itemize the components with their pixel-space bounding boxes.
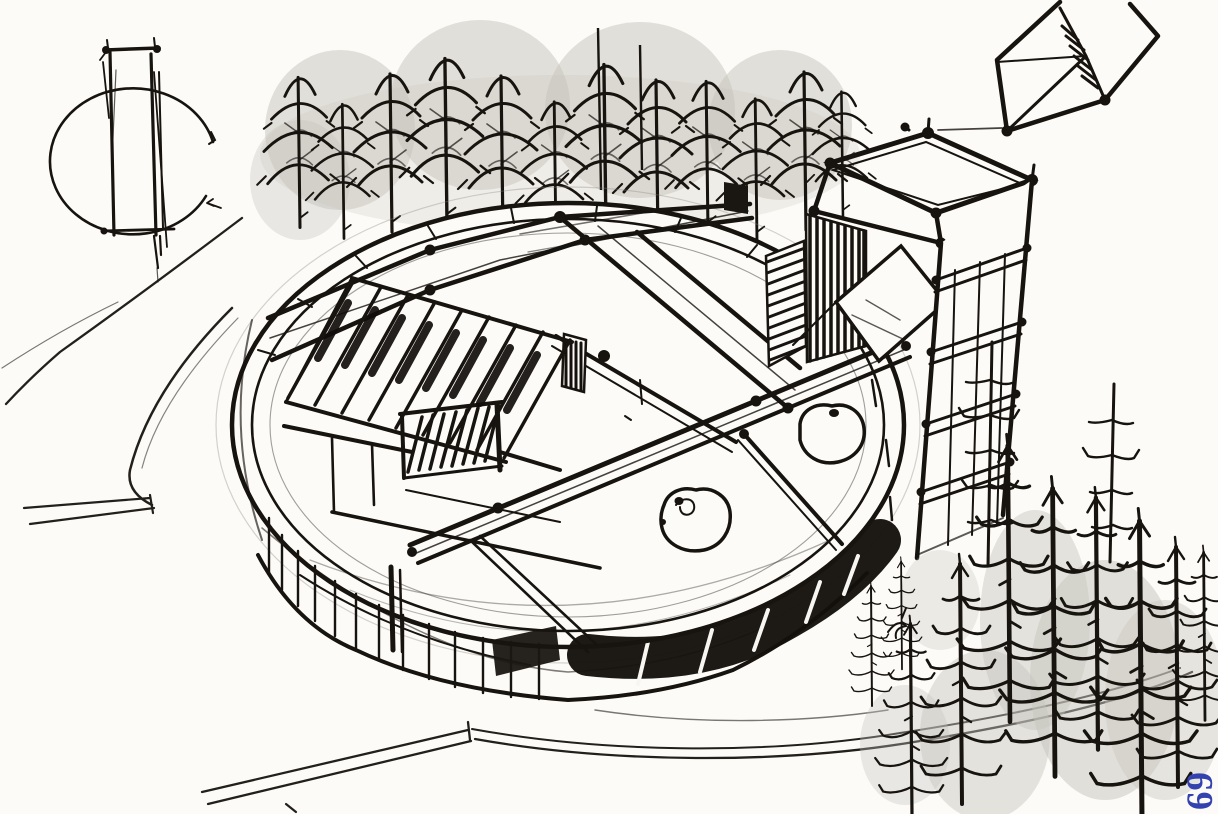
path-fork-left	[202, 722, 471, 804]
road-curve-topleft	[6, 218, 242, 404]
path-faint-under	[595, 710, 888, 721]
ground-tick	[286, 804, 296, 812]
road-curve-topleft-faint	[2, 302, 118, 368]
architectural-sketch: 69	[0, 0, 1218, 814]
road-left	[24, 495, 154, 524]
cube-structure	[938, 2, 1158, 136]
conifer-wash	[860, 510, 1218, 814]
post-lines	[110, 52, 156, 235]
sketch-page: 69	[0, 0, 1218, 814]
arrow-mark-icon	[207, 199, 221, 208]
circle-outline	[50, 88, 213, 234]
tower-grid-facade	[917, 180, 1032, 558]
road-sweep-left-inner	[142, 318, 238, 468]
landmark-circle-symbol	[50, 38, 221, 282]
page-number: 69	[1180, 771, 1218, 810]
